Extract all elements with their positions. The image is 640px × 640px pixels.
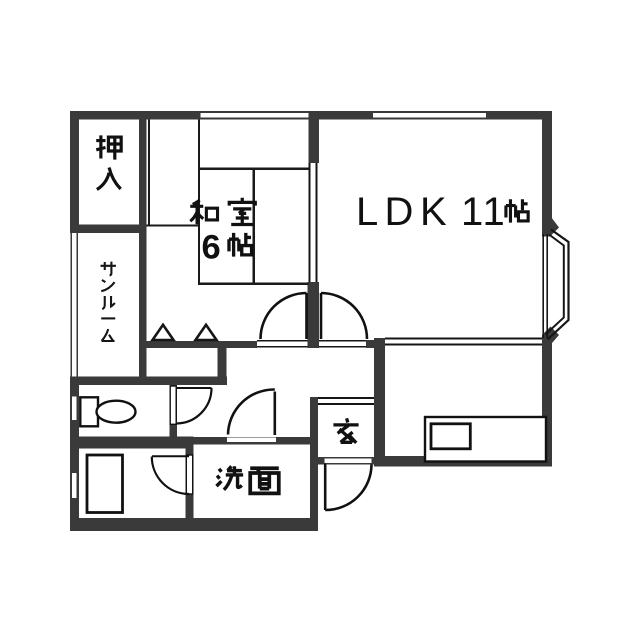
svg-text:1: 1	[483, 190, 505, 234]
svg-text:1: 1	[461, 190, 483, 234]
svg-text:6: 6	[202, 229, 221, 267]
svg-text:K: K	[420, 190, 447, 234]
svg-text:L: L	[356, 190, 378, 234]
svg-text:D: D	[385, 190, 414, 234]
